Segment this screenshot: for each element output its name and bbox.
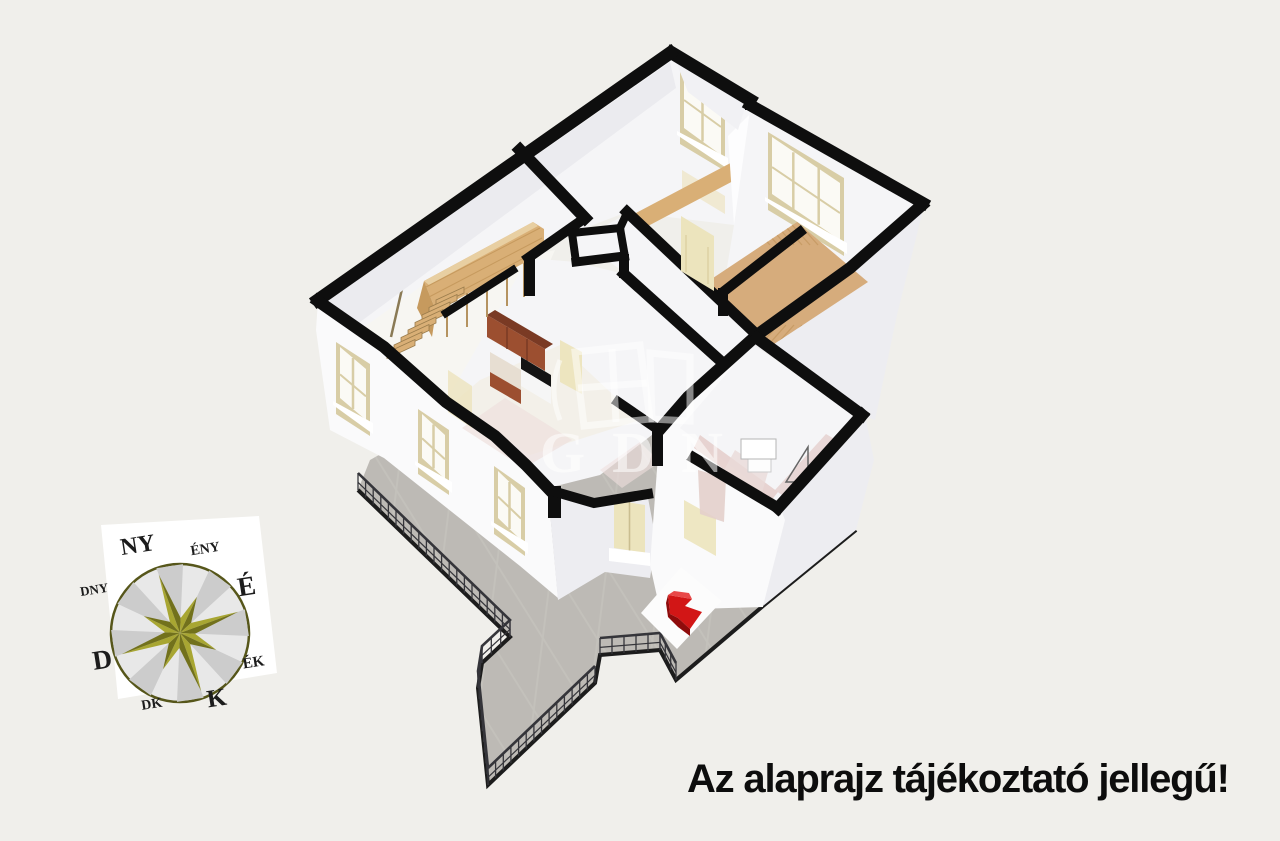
svg-text:ÉK: ÉK [241, 652, 265, 672]
svg-text:GDN: GDN [540, 420, 750, 485]
svg-text:Az alaprajz tájékoztató jelleg: Az alaprajz tájékoztató jellegű! [687, 757, 1229, 801]
svg-text:NY: NY [119, 530, 157, 561]
